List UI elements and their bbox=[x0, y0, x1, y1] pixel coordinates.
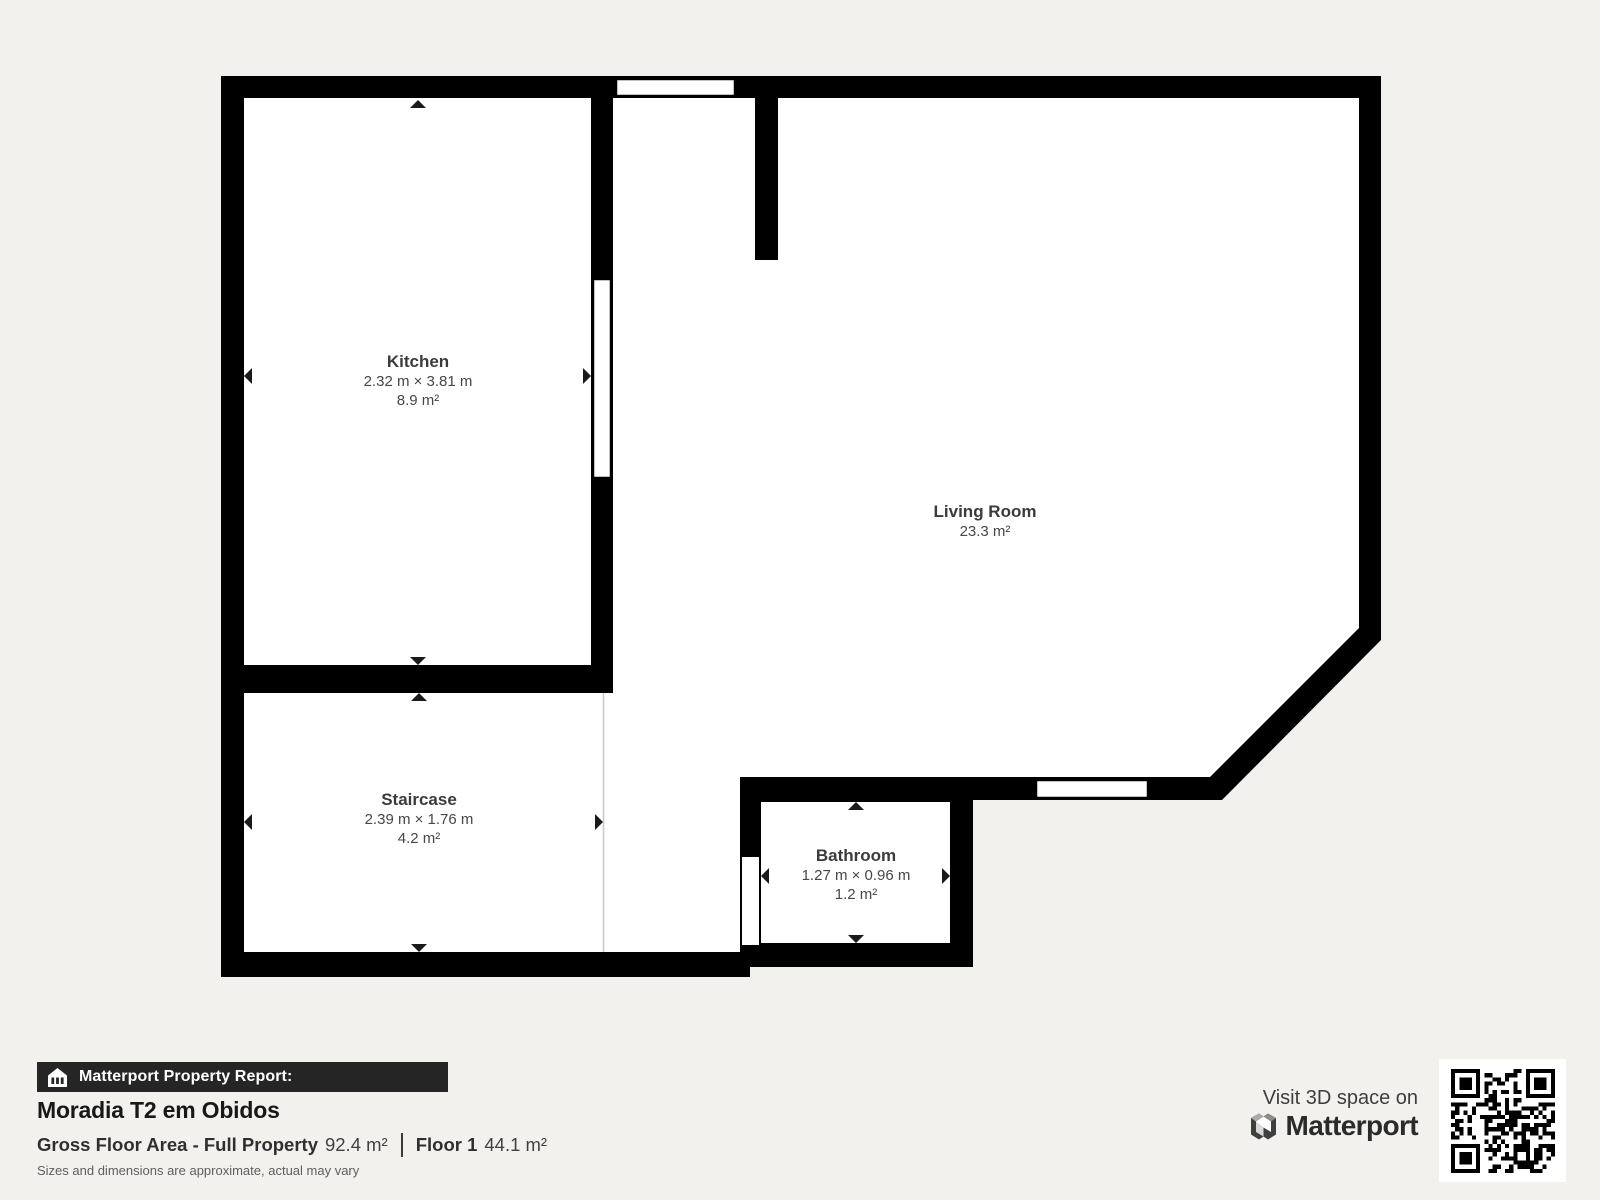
matterport-brand-name: Matterport bbox=[1286, 1110, 1418, 1142]
room-dims: 2.39 m × 1.76 m bbox=[365, 810, 474, 829]
room-area: 1.2 m² bbox=[802, 885, 911, 904]
stats-divider bbox=[401, 1133, 403, 1157]
room-area: 8.9 m² bbox=[364, 391, 473, 410]
bathroom-label: Bathroom 1.27 m × 0.96 m 1.2 m² bbox=[802, 846, 911, 904]
room-area: 4.2 m² bbox=[365, 829, 474, 848]
room-area: 23.3 m² bbox=[934, 522, 1037, 541]
qr-code bbox=[1451, 1069, 1555, 1173]
gross-floor-area-label: Gross Floor Area - Full Property bbox=[37, 1134, 318, 1156]
matterport-logo-icon bbox=[1250, 1112, 1277, 1141]
room-name: Staircase bbox=[365, 790, 474, 810]
property-report-page: { "plan": { "rooms": [ {"name": "Kitchen… bbox=[0, 0, 1600, 1200]
living-room-window bbox=[1036, 780, 1148, 798]
floor-value: 44.1 m² bbox=[484, 1134, 547, 1156]
kitchen-interior-window bbox=[593, 279, 611, 478]
house-icon bbox=[48, 1068, 67, 1087]
disclaimer-text: Sizes and dimensions are approximate, ac… bbox=[37, 1163, 359, 1178]
living-room-label: Living Room 23.3 m² bbox=[934, 502, 1037, 541]
visit-3d-space-text: Visit 3D space on bbox=[1263, 1087, 1418, 1110]
room-name: Bathroom bbox=[802, 846, 911, 866]
kitchen-label: Kitchen 2.32 m × 3.81 m 8.9 m² bbox=[364, 352, 473, 410]
floor-plan bbox=[0, 0, 1600, 1005]
room-name: Kitchen bbox=[364, 352, 473, 372]
bathroom-door-opening bbox=[742, 857, 759, 945]
staircase-label: Staircase 2.39 m × 1.76 m 4.2 m² bbox=[365, 790, 474, 848]
matterport-logo: Matterport bbox=[1250, 1110, 1418, 1142]
room-dims: 2.32 m × 3.81 m bbox=[364, 372, 473, 391]
floor-label: Floor 1 bbox=[416, 1134, 478, 1156]
qr-code-card bbox=[1439, 1059, 1566, 1182]
report-header-label: Matterport Property Report: bbox=[79, 1068, 292, 1086]
property-title: Moradia T2 em Obidos bbox=[37, 1097, 280, 1124]
floor-stats: Gross Floor Area - Full Property 92.4 m²… bbox=[37, 1133, 547, 1157]
gross-floor-area-value: 92.4 m² bbox=[325, 1134, 388, 1156]
room-name: Living Room bbox=[934, 502, 1037, 522]
entry-window bbox=[616, 79, 735, 96]
report-header-bar: Matterport Property Report: bbox=[37, 1062, 448, 1092]
room-dims: 1.27 m × 0.96 m bbox=[802, 866, 911, 885]
